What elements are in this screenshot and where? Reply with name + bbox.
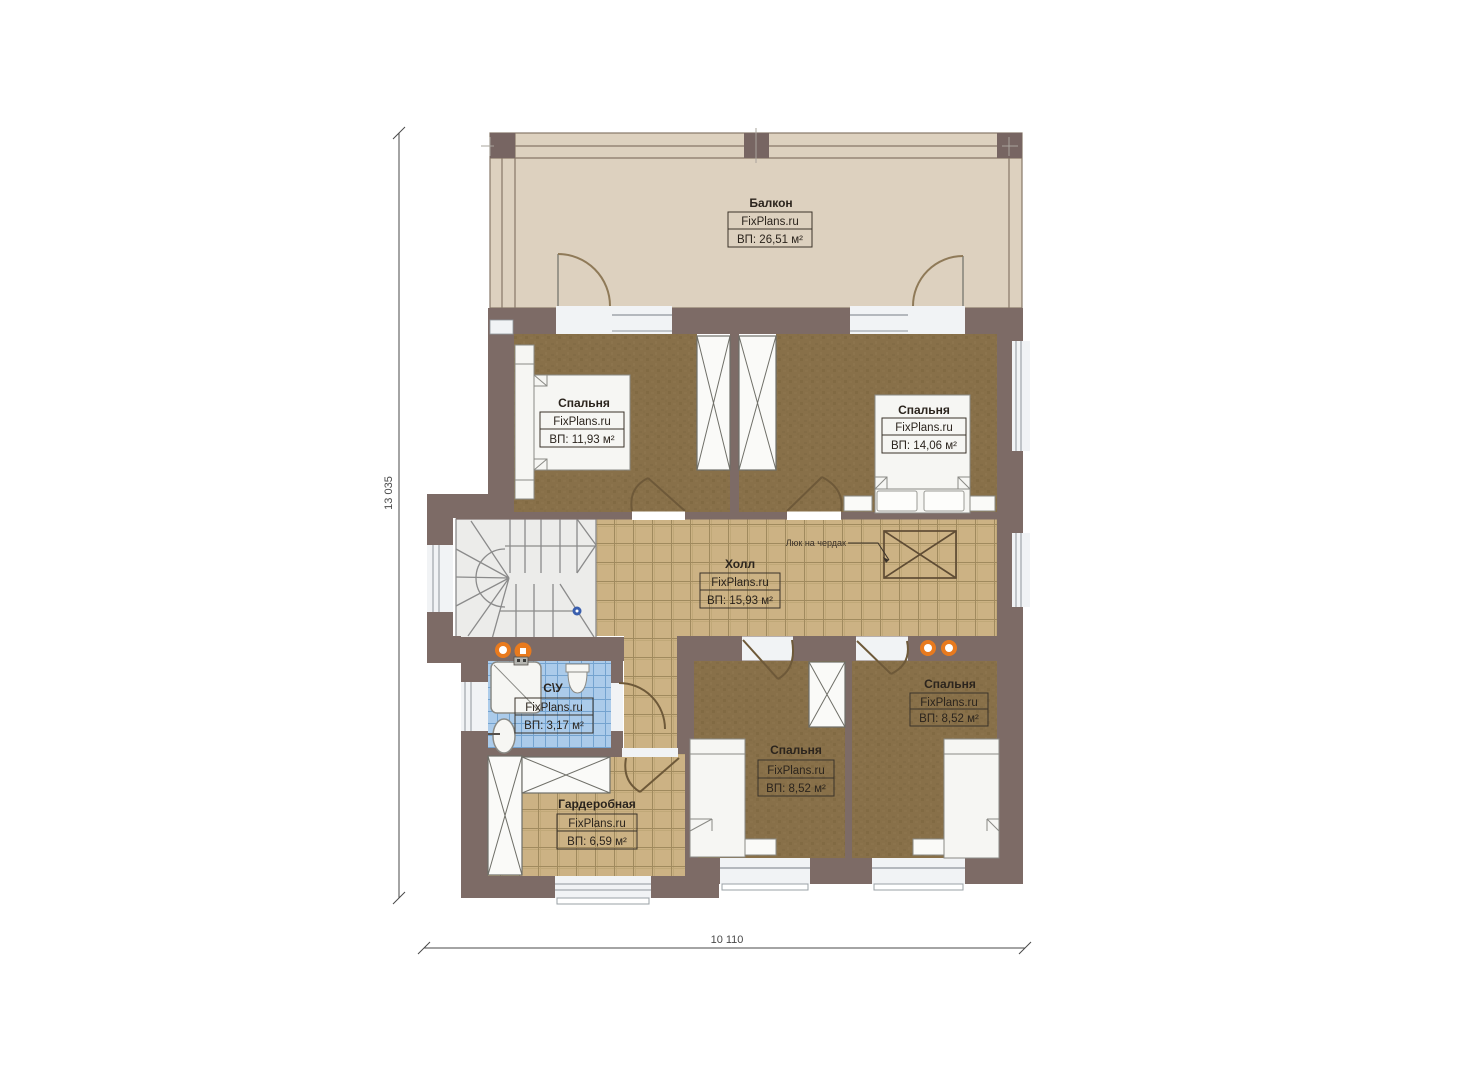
svg-text:FixPlans.ru: FixPlans.ru xyxy=(767,765,825,777)
svg-text:FixPlans.ru: FixPlans.ru xyxy=(920,697,978,709)
svg-text:ВП: 8,52 м²: ВП: 8,52 м² xyxy=(766,783,826,795)
svg-text:Люк на чердак: Люк на чердак xyxy=(786,538,846,548)
svg-text:С\У: С\У xyxy=(543,681,563,695)
svg-text:ВП: 26,51 м²: ВП: 26,51 м² xyxy=(737,234,803,246)
svg-text:FixPlans.ru: FixPlans.ru xyxy=(525,702,583,714)
svg-text:FixPlans.ru: FixPlans.ru xyxy=(741,216,799,228)
svg-text:FixPlans.ru: FixPlans.ru xyxy=(895,422,953,434)
svg-text:ВП: 6,59 м²: ВП: 6,59 м² xyxy=(567,836,627,848)
svg-text:ВП: 3,17 м²: ВП: 3,17 м² xyxy=(524,720,584,732)
svg-text:ВП: 15,93 м²: ВП: 15,93 м² xyxy=(707,595,773,607)
svg-text:Гардеробная: Гардеробная xyxy=(558,797,636,811)
svg-text:Спальня: Спальня xyxy=(770,743,822,757)
svg-text:FixPlans.ru: FixPlans.ru xyxy=(711,577,769,589)
svg-text:FixPlans.ru: FixPlans.ru xyxy=(553,416,611,428)
svg-text:Спальня: Спальня xyxy=(924,677,976,691)
svg-text:FixPlans.ru: FixPlans.ru xyxy=(568,818,626,830)
svg-text:ВП: 8,52 м²: ВП: 8,52 м² xyxy=(919,713,979,725)
svg-text:Холл: Холл xyxy=(725,557,755,571)
svg-text:13 035: 13 035 xyxy=(383,476,395,510)
svg-text:ВП: 14,06 м²: ВП: 14,06 м² xyxy=(891,440,957,452)
svg-text:ВП: 11,93 м²: ВП: 11,93 м² xyxy=(549,434,614,446)
svg-text:Спальня: Спальня xyxy=(898,403,950,417)
svg-text:Спальня: Спальня xyxy=(558,396,610,410)
svg-text:Балкон: Балкон xyxy=(749,196,792,210)
svg-text:10 110: 10 110 xyxy=(711,934,744,946)
